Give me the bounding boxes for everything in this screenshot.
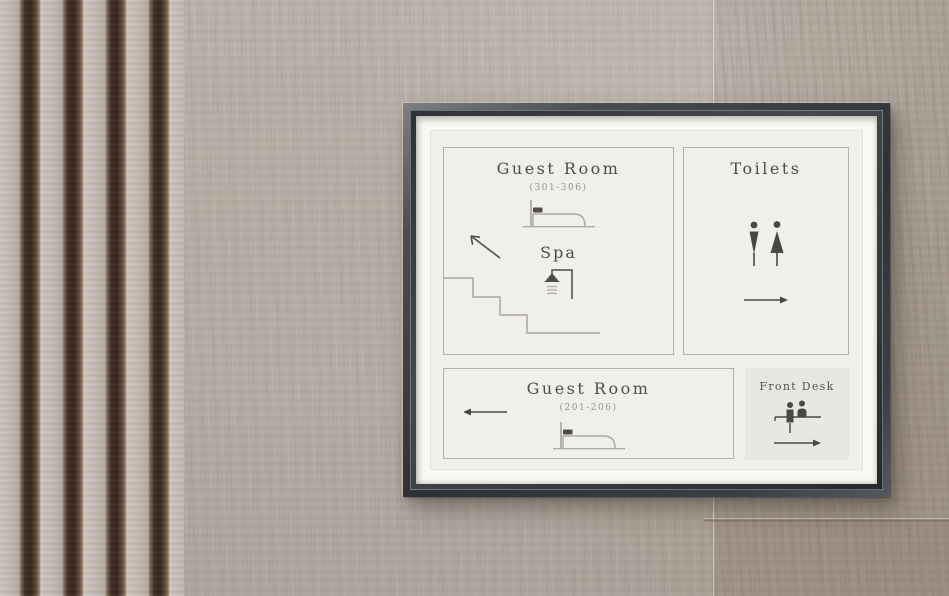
guest-room-upper-range: (301-306): [444, 183, 673, 193]
man-woman-icons: [742, 220, 790, 268]
guest-room-lower-title: Guest Room: [444, 379, 733, 398]
toilets-title: Toilets: [684, 159, 848, 178]
arrow-left-icon: [464, 406, 508, 418]
stairs-icon: [443, 276, 603, 336]
panel-guest-room-lower: Guest Room (201-206): [443, 368, 734, 459]
scene: Guest Room (301-306) Spa: [0, 0, 949, 596]
panel-toilets: Toilets: [683, 147, 849, 355]
wayfinding-sign: Guest Room (301-306) Spa: [431, 131, 862, 469]
panel-guest-room-upper: Guest Room (301-306) Spa: [443, 147, 674, 355]
reception-desk-icon: [769, 397, 825, 435]
bed-icon: [519, 196, 599, 230]
frame-mat: Guest Room (301-306) Spa: [416, 116, 877, 484]
man-icon: [750, 222, 759, 266]
arrow-right-icon: [743, 294, 789, 306]
panel-front-desk: Front Desk: [745, 368, 849, 460]
wall-seam-horizontal: [704, 518, 949, 522]
spa-label: Spa: [444, 243, 673, 262]
arrow-right-icon: [772, 437, 822, 449]
wall-lower-right-plank: [712, 521, 949, 596]
frame-inner-ridge: Guest Room (301-306) Spa: [410, 110, 883, 490]
woman-icon: [771, 221, 784, 266]
picture-frame: Guest Room (301-306) Spa: [403, 103, 890, 497]
bed-icon: [549, 418, 629, 452]
front-desk-title: Front Desk: [745, 380, 849, 393]
wood-slat-panel: [0, 0, 184, 596]
guest-room-upper-title: Guest Room: [444, 159, 673, 178]
